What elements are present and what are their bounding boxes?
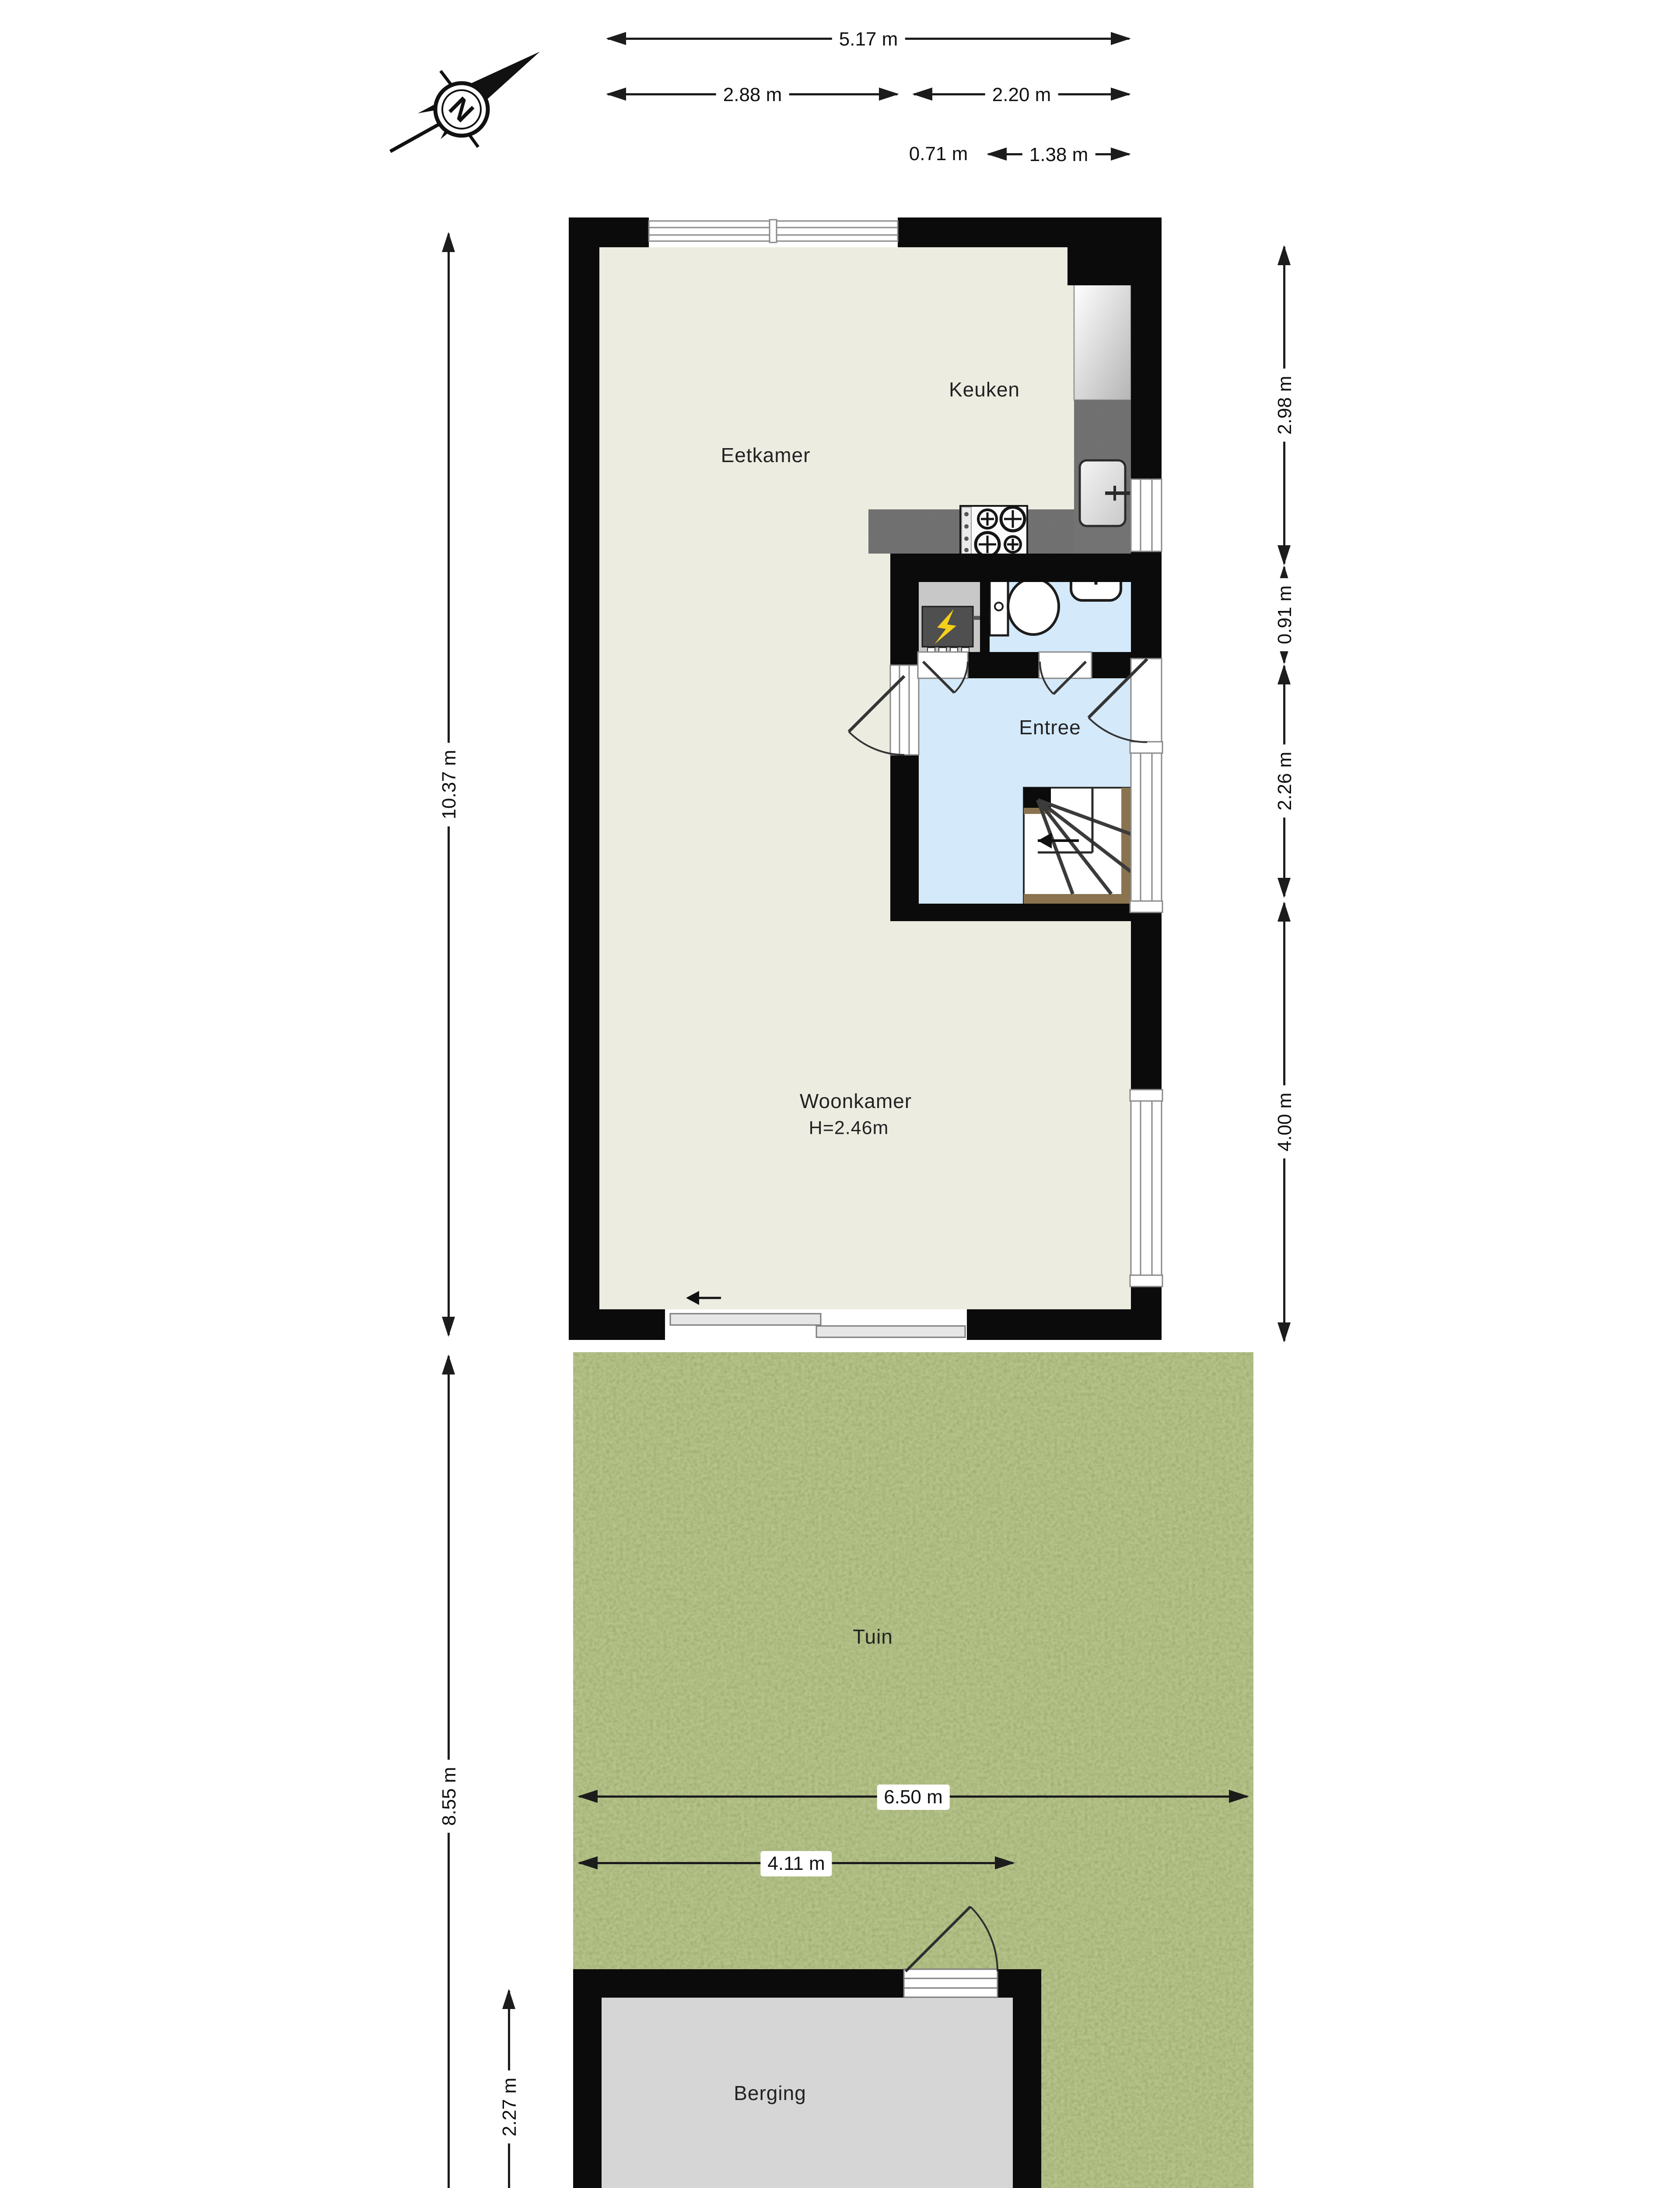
compass-icon: N	[390, 52, 540, 151]
room-label-shed: Berging	[734, 2081, 806, 2105]
entree-window	[1130, 742, 1162, 912]
house-floors	[599, 247, 1131, 1309]
room-label-kitchen: Keuken	[949, 378, 1020, 401]
stairs	[1024, 788, 1131, 904]
kitchen-appliance-icon	[1074, 284, 1131, 400]
kitchen-sink-icon	[1080, 460, 1130, 526]
front-top-window	[649, 220, 898, 242]
room-label-living-height: H=2.46m	[809, 1118, 889, 1139]
room-label-entry: Entree	[1019, 715, 1081, 739]
living-room-window	[1130, 1090, 1162, 1287]
room-label-dining: Eetkamer	[721, 443, 811, 467]
toilet-icon	[990, 578, 1059, 635]
kitchen-window	[1131, 479, 1162, 551]
room-label-garden: Tuin	[853, 1625, 893, 1648]
floorplan-page: N Eetkamer Keuken Entree Woonkamer H=2.4…	[0, 0, 1680, 2188]
stove-icon	[960, 506, 1027, 557]
room-label-living: Woonkamer	[800, 1089, 912, 1113]
dim-top-inset: 0.71 m	[905, 142, 973, 166]
